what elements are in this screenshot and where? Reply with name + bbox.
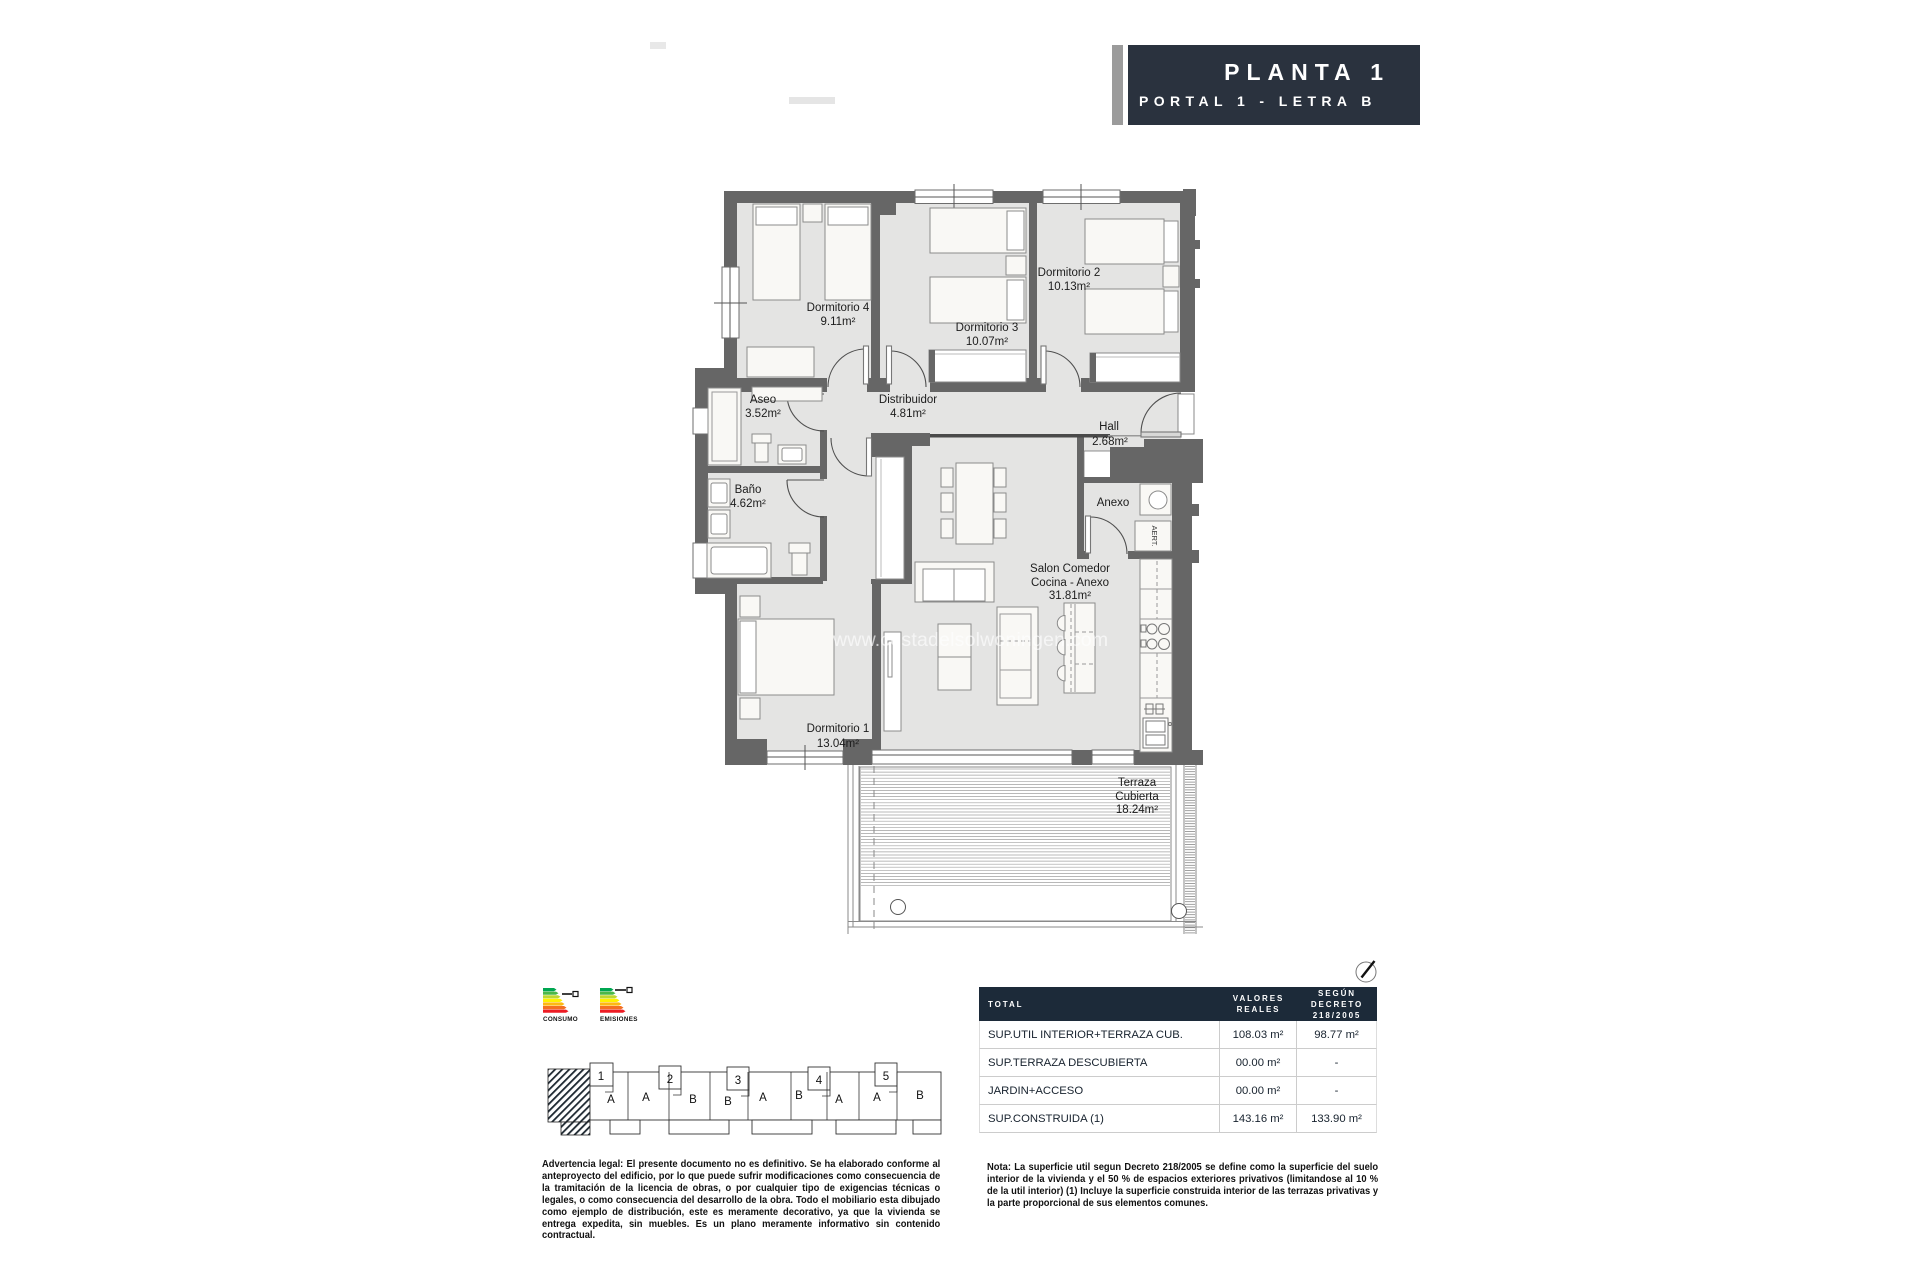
- svg-text:Dormitorio 3: Dormitorio 3: [956, 322, 1019, 334]
- svg-text:9.11m²: 9.11m²: [821, 316, 856, 328]
- svg-text:A: A: [642, 1092, 650, 1104]
- svg-text:10.07m²: 10.07m²: [966, 336, 1008, 348]
- svg-text:2.68m²: 2.68m²: [1092, 436, 1128, 448]
- svg-text:AERT.: AERT.: [1150, 525, 1159, 546]
- svg-text:Anexo: Anexo: [1097, 497, 1130, 509]
- svg-text:1: 1: [598, 1071, 604, 1083]
- svg-text:B: B: [916, 1090, 924, 1102]
- svg-text:4.81m²: 4.81m²: [890, 408, 926, 420]
- svg-text:B: B: [689, 1094, 697, 1106]
- svg-text:18.24m²: 18.24m²: [1116, 804, 1158, 816]
- svg-text:5: 5: [883, 1071, 889, 1083]
- svg-text:31.81m²: 31.81m²: [1049, 590, 1091, 602]
- svg-text:Salon Comedor: Salon Comedor: [1030, 563, 1110, 575]
- svg-text:2: 2: [667, 1074, 673, 1086]
- svg-text:Baño: Baño: [735, 484, 762, 496]
- svg-text:Hall: Hall: [1099, 421, 1119, 433]
- svg-text:10.13m²: 10.13m²: [1048, 281, 1090, 293]
- svg-text:4.62m²: 4.62m²: [730, 498, 766, 510]
- svg-text:3: 3: [735, 1075, 741, 1087]
- svg-text:A: A: [835, 1094, 843, 1106]
- svg-text:Cocina - Anexo: Cocina - Anexo: [1031, 577, 1109, 589]
- svg-text:Dormitorio 1: Dormitorio 1: [807, 723, 870, 735]
- svg-text:B: B: [795, 1090, 803, 1102]
- svg-text:Aseo: Aseo: [750, 394, 776, 406]
- svg-text:Dormitorio 2: Dormitorio 2: [1038, 267, 1101, 279]
- svg-text:A: A: [759, 1092, 767, 1104]
- svg-text:4: 4: [816, 1075, 823, 1087]
- svg-text:13.04m²: 13.04m²: [817, 738, 859, 750]
- svg-text:A: A: [873, 1092, 881, 1104]
- svg-text:Cubierta: Cubierta: [1115, 791, 1159, 803]
- svg-text:Terraza: Terraza: [1118, 777, 1157, 789]
- svg-text:Distribuidor: Distribuidor: [879, 394, 937, 406]
- svg-text:3.52m²: 3.52m²: [745, 408, 781, 420]
- svg-text:B: B: [724, 1096, 732, 1108]
- svg-text:Dormitorio 4: Dormitorio 4: [807, 302, 870, 314]
- svg-text:A: A: [607, 1094, 615, 1106]
- svg-text:www.costadelsolwoningen.com: www.costadelsolwoningen.com: [832, 629, 1108, 651]
